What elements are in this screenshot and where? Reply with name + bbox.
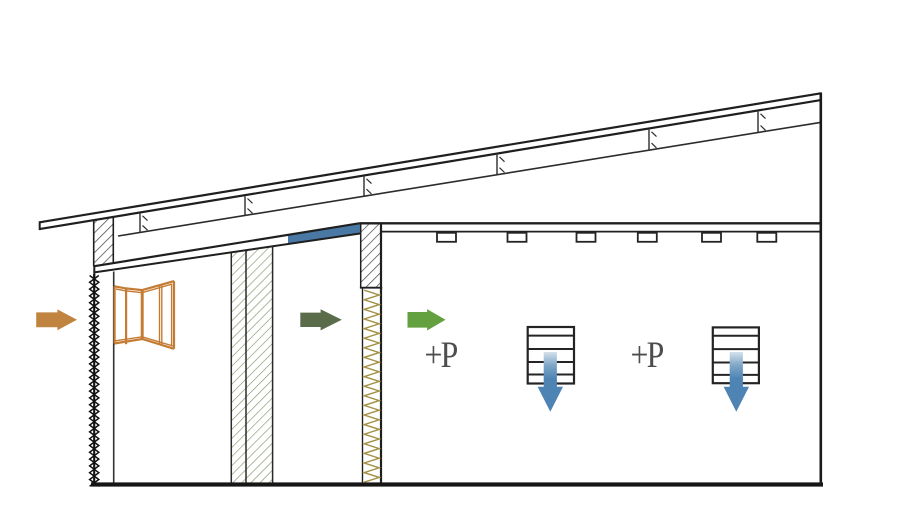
svg-text:+P: +P [631, 336, 664, 375]
svg-text:+P: +P [425, 336, 458, 375]
